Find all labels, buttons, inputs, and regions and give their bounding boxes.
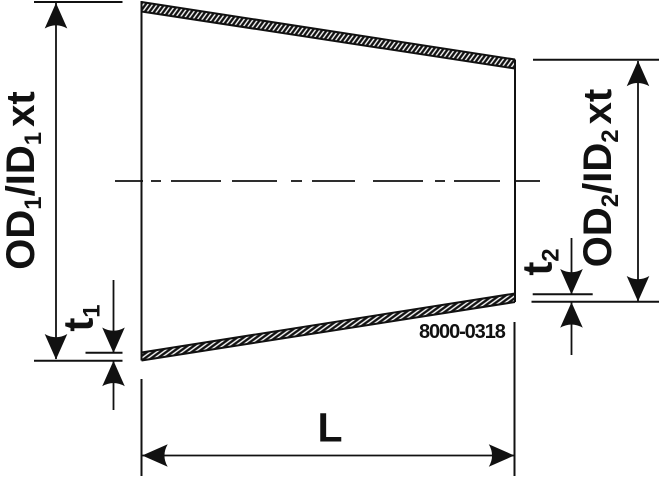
svg-text:L: L <box>317 405 342 451</box>
svg-text:OD2/ID2xt: OD2/ID2xt <box>576 89 624 267</box>
svg-text:OD1/ID1xt: OD1/ID1xt <box>0 91 47 269</box>
svg-text:8000-0318: 8000-0318 <box>419 321 506 343</box>
